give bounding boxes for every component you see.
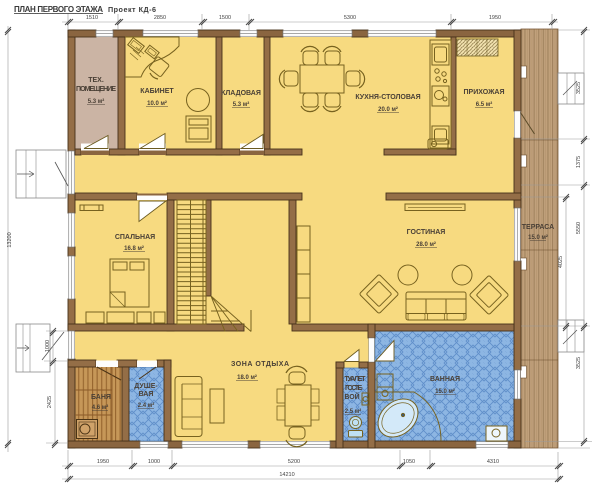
svg-text:ГОСТИНАЯ: ГОСТИНАЯ (407, 229, 446, 236)
svg-text:БАНЯ: БАНЯ (91, 394, 111, 401)
svg-text:3525: 3525 (576, 82, 582, 94)
svg-text:15.0 м²: 15.0 м² (528, 234, 548, 241)
svg-text:ТЕХ.: ТЕХ. (88, 77, 104, 84)
svg-text:13200: 13200 (7, 232, 13, 247)
svg-text:1950: 1950 (489, 15, 501, 21)
svg-text:5.3 м²: 5.3 м² (233, 101, 249, 108)
svg-text:1950: 1950 (97, 459, 109, 465)
svg-text:ПЛАН ПЕРВОГО ЭТАЖА: ПЛАН ПЕРВОГО ЭТАЖА (14, 5, 103, 14)
svg-text:4310: 4310 (487, 459, 499, 465)
svg-text:2.5 м²: 2.5 м² (345, 408, 361, 415)
svg-text:2.4 м²: 2.4 м² (138, 402, 154, 409)
svg-text:4.6 м²: 4.6 м² (92, 404, 108, 411)
svg-text:6.5 м²: 6.5 м² (476, 101, 492, 108)
svg-text:18.0 м²: 18.0 м² (237, 374, 257, 381)
svg-text:2850: 2850 (154, 15, 166, 21)
svg-text:ТЕРРАСА: ТЕРРАСА (522, 224, 554, 231)
svg-text:1000: 1000 (148, 459, 160, 465)
svg-text:1500: 1500 (219, 15, 231, 21)
svg-text:КЛАДОВАЯ: КЛАДОВАЯ (221, 90, 261, 97)
svg-text:ВАЯ: ВАЯ (139, 391, 154, 398)
svg-text:5300: 5300 (344, 15, 356, 21)
svg-text:ПРИХОЖАЯ: ПРИХОЖАЯ (464, 89, 505, 96)
svg-text:20.0 м²: 20.0 м² (378, 106, 398, 113)
svg-text:КАБИНЕТ: КАБИНЕТ (140, 88, 174, 95)
svg-text:5550: 5550 (576, 222, 582, 234)
svg-text:1000: 1000 (45, 340, 51, 352)
svg-text:1510: 1510 (86, 15, 98, 21)
svg-text:КУХНЯ-СТОЛОВАЯ: КУХНЯ-СТОЛОВАЯ (355, 94, 420, 101)
svg-text:1375: 1375 (576, 156, 582, 168)
svg-text:10.0 м²: 10.0 м² (147, 100, 167, 107)
svg-text:28.0 м²: 28.0 м² (416, 241, 436, 248)
svg-text:15.0 м²: 15.0 м² (435, 388, 455, 395)
svg-text:ВОЙ: ВОЙ (344, 392, 359, 401)
svg-text:2425: 2425 (47, 396, 53, 408)
svg-text:1050: 1050 (403, 459, 415, 465)
svg-text:ТУАЛЕТ: ТУАЛЕТ (345, 376, 367, 383)
svg-text:ГОСТЕ-: ГОСТЕ- (345, 385, 364, 392)
svg-text:3525: 3525 (576, 357, 582, 369)
svg-text:ДУШЕ-: ДУШЕ- (134, 383, 158, 390)
svg-text:ПОМЕЩЕНИЕ: ПОМЕЩЕНИЕ (76, 86, 116, 93)
svg-text:14210: 14210 (279, 472, 294, 478)
svg-text:4025: 4025 (558, 256, 564, 268)
svg-text:ЗОНА ОТДЫХА: ЗОНА ОТДЫХА (231, 361, 289, 368)
svg-text:16.8 м²: 16.8 м² (124, 245, 144, 252)
svg-text:СПАЛЬНАЯ: СПАЛЬНАЯ (115, 234, 155, 241)
svg-text:ВАННАЯ: ВАННАЯ (430, 376, 460, 383)
svg-text:Проект КД-6: Проект КД-6 (108, 5, 156, 14)
svg-text:5200: 5200 (288, 459, 300, 465)
svg-text:5.3 м²: 5.3 м² (88, 98, 104, 105)
